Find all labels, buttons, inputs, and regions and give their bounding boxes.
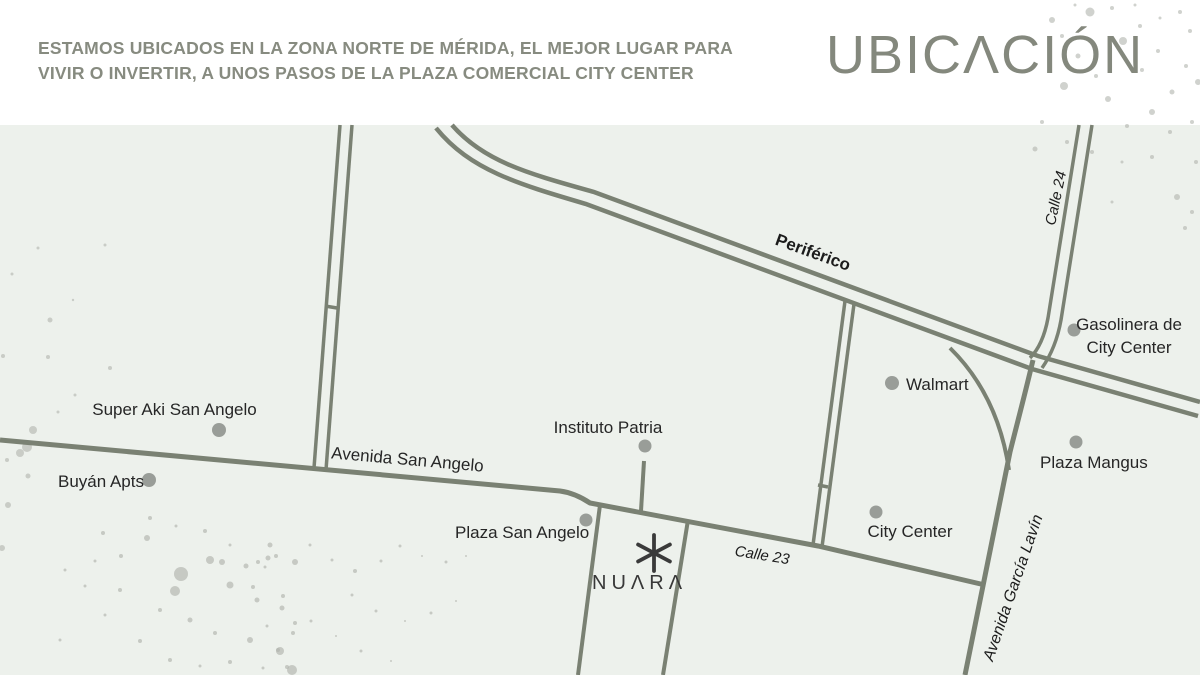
- label-gasolinera: Gasolinera de City Center: [1068, 314, 1190, 360]
- nuara-logo-name: NUΛRΛ: [592, 572, 686, 595]
- poi-dot-walmart: [885, 376, 899, 390]
- label-walmart: Walmart: [906, 374, 969, 395]
- location-slide: ESTAMOS UBICADOS EN LA ZONA NORTE DE MÉR…: [0, 0, 1200, 675]
- label-plaza-mangus: Plaza Mangus: [1040, 452, 1146, 473]
- label-buyan-apts: Buyán Apts: [57, 471, 145, 492]
- label-super-aki: Super Aki San Angelo: [92, 399, 257, 420]
- poi-dot-instituto-patria: [639, 440, 652, 453]
- label-instituto-patria: Instituto Patria: [545, 417, 671, 438]
- label-city-center: City Center: [867, 521, 953, 542]
- label-plaza-san-angelo: Plaza San Angelo: [455, 522, 583, 543]
- poi-dot-plaza-mangus: [1070, 436, 1083, 449]
- poi-dot-super-aki: [212, 423, 226, 437]
- poi-dot-city-center: [870, 506, 883, 519]
